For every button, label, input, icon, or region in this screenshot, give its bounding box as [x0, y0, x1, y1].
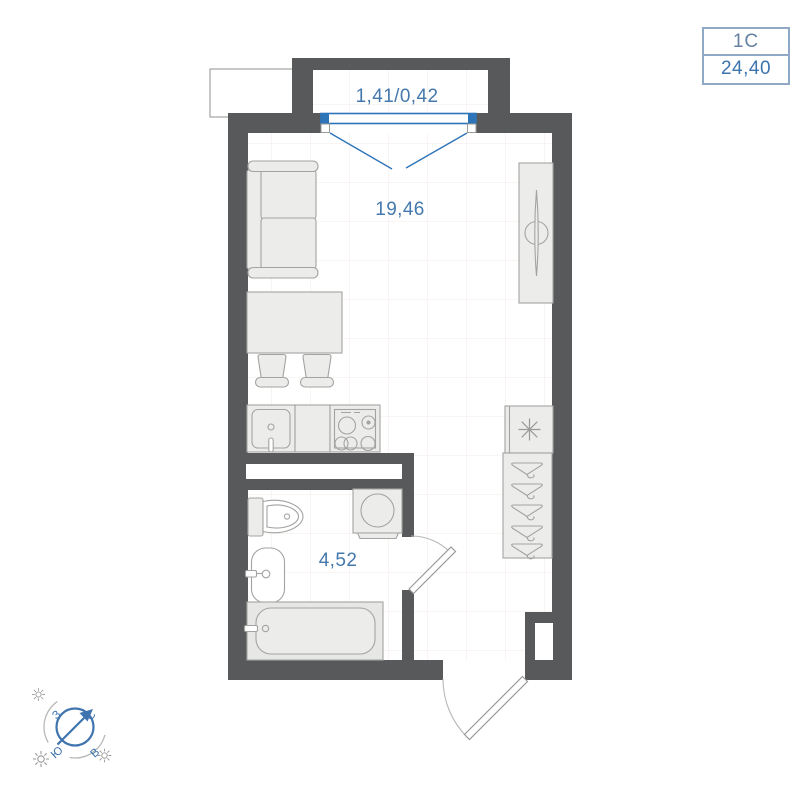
compass-needle — [58, 717, 86, 745]
compass-east-label: В — [88, 746, 102, 760]
living-kitchen-area-label: 19,46 — [375, 199, 425, 221]
compass-west-label: З — [50, 709, 63, 723]
bathroom-area-label: 4,52 — [319, 550, 358, 572]
wardrobe — [519, 163, 553, 303]
neighbor-unit-outline — [210, 69, 295, 117]
bathroom-right-wall-lower — [402, 590, 414, 660]
countertop — [295, 405, 330, 452]
entrance-door — [443, 677, 528, 740]
compass-south-label: Ю — [49, 744, 66, 761]
total-area-label: 24,40 — [704, 56, 788, 83]
sun-icon — [32, 688, 45, 701]
bottom-wall — [228, 660, 443, 680]
divider-niche — [246, 464, 402, 479]
sun-icon — [33, 751, 49, 767]
left-wall — [228, 113, 248, 680]
balcony-area-label: 1,41/0,42 — [356, 86, 439, 108]
compass-north-label: С — [84, 709, 98, 723]
refrigerator — [505, 406, 553, 453]
apartment-type-label: 1С — [704, 29, 788, 56]
chair — [256, 355, 289, 388]
apartment-type-badge: 1С 24,40 — [702, 27, 790, 85]
stove — [330, 405, 380, 452]
right-wall — [552, 113, 572, 680]
chair — [301, 355, 334, 388]
bathtub — [245, 602, 384, 660]
floor-plan-canvas: З С Ю В — [0, 0, 800, 800]
floor-grid — [248, 70, 552, 660]
compass-icon: З С Ю В — [32, 688, 111, 767]
dining-table — [247, 292, 342, 353]
floor-plan-page: З С Ю В 1,41/0,42 19,46 4,52 1С 24,40 — [0, 0, 800, 800]
balcony-top-wall — [292, 58, 510, 70]
bathroom-right-wall-upper — [402, 453, 414, 537]
snowflake-icon — [519, 419, 541, 441]
hanger-closet — [503, 453, 552, 559]
entrance-niche — [535, 623, 553, 660]
kitchen-sink — [247, 405, 295, 452]
sofa — [247, 161, 318, 278]
washing-machine — [353, 489, 402, 539]
